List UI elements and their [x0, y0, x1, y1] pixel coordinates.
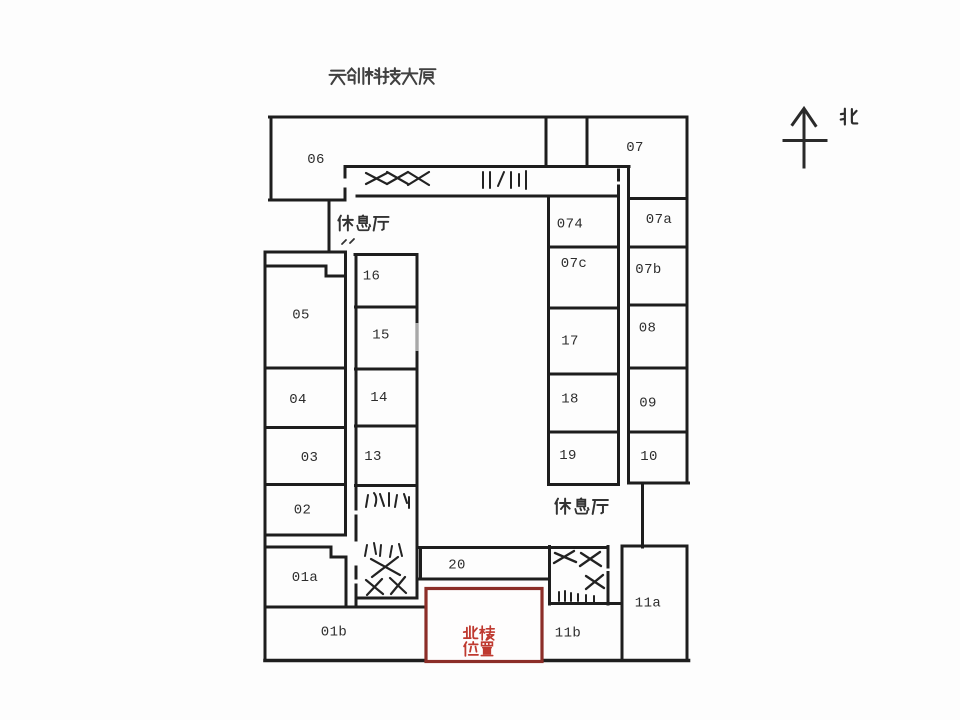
- svg-text:18: 18: [561, 392, 579, 408]
- svg-text:03: 03: [301, 450, 319, 466]
- svg-text:04: 04: [289, 392, 307, 408]
- svg-text:11a: 11a: [635, 596, 661, 612]
- svg-text:10: 10: [640, 449, 658, 465]
- svg-text:07: 07: [626, 140, 644, 156]
- svg-text:07c: 07c: [561, 256, 587, 272]
- svg-text:02: 02: [294, 503, 312, 519]
- svg-text:16: 16: [363, 269, 381, 285]
- svg-text:07b: 07b: [635, 262, 661, 278]
- svg-text:19: 19: [559, 448, 577, 464]
- svg-text:17: 17: [561, 334, 579, 350]
- svg-text:09: 09: [639, 396, 657, 412]
- svg-text:14: 14: [370, 390, 388, 406]
- svg-text:074: 074: [557, 217, 583, 233]
- svg-text:06: 06: [307, 152, 325, 168]
- svg-text:15: 15: [372, 328, 390, 344]
- svg-text:11b: 11b: [555, 626, 581, 642]
- svg-text:08: 08: [639, 321, 657, 337]
- svg-text:01b: 01b: [321, 625, 347, 641]
- svg-text:13: 13: [364, 449, 382, 465]
- svg-text:01a: 01a: [292, 570, 318, 586]
- svg-text:07a: 07a: [646, 212, 672, 228]
- svg-text:20: 20: [448, 558, 466, 574]
- svg-text:05: 05: [292, 308, 310, 324]
